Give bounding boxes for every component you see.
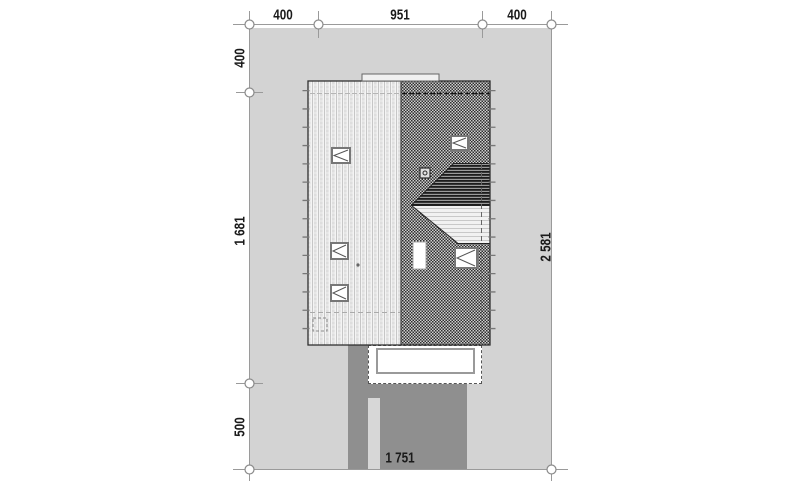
- roof: [306, 74, 492, 345]
- dim-top-right: 400: [507, 8, 527, 23]
- ridge-chimney: [362, 74, 439, 81]
- dim-right-total: 2 581: [539, 232, 554, 261]
- dim-bottom-total: 1 751: [385, 451, 414, 466]
- chimney-white: [413, 242, 426, 269]
- dim-left-upper: 400: [233, 48, 248, 68]
- vent-dot: [356, 263, 359, 266]
- dim-top-left: 400: [273, 8, 293, 23]
- dim-left-lower: 500: [233, 417, 248, 437]
- dim-left-middle: 1 681: [233, 216, 248, 245]
- dim-top-center: 951: [390, 8, 410, 23]
- roof-plan-drawing: [0, 0, 800, 496]
- roof-plane-left: [308, 81, 401, 345]
- chimney-small: [420, 168, 430, 178]
- site-plan-canvas: 400 951 400 400 1 681 500 2 581 1 751: [0, 0, 800, 496]
